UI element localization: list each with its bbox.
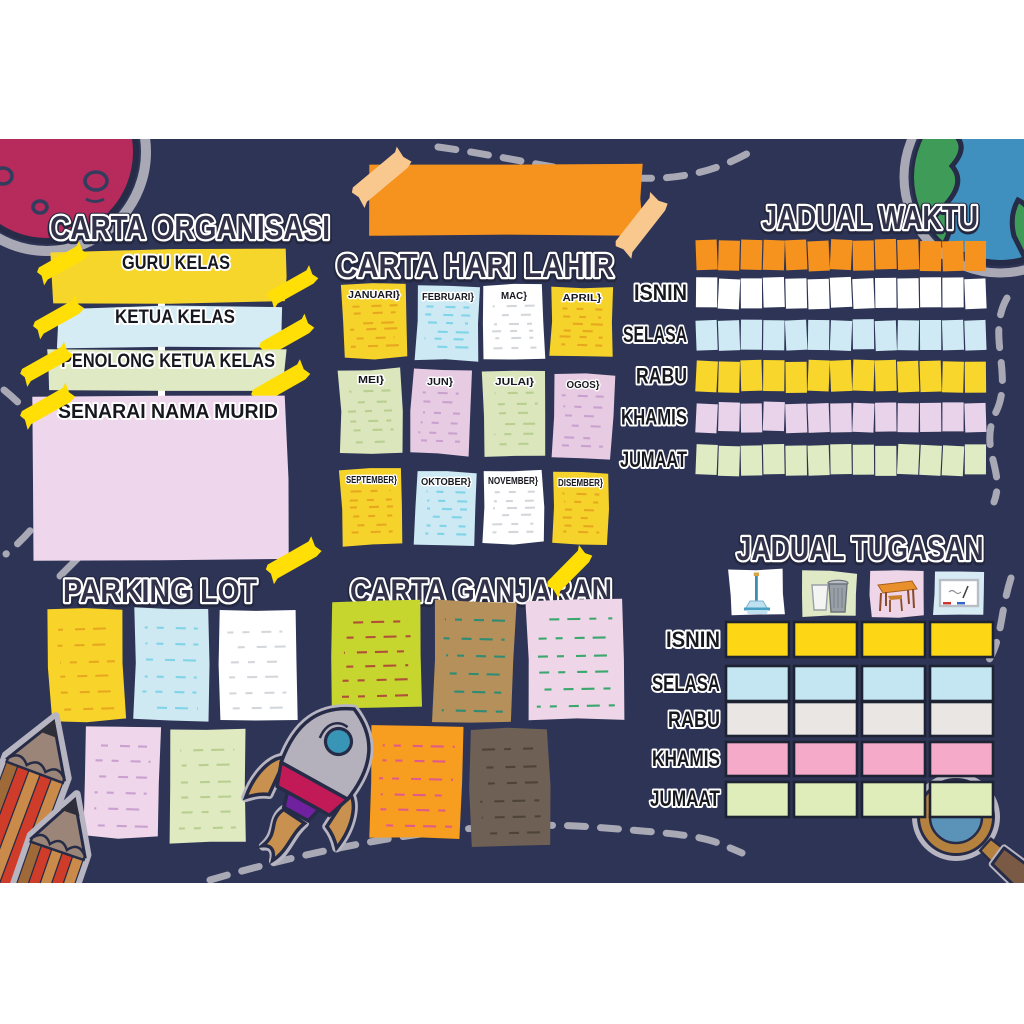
svg-text:KHAMIS: KHAMIS <box>652 746 720 771</box>
svg-text:RABU: RABU <box>668 707 720 732</box>
svg-text:MAC}: MAC} <box>501 291 527 302</box>
svg-text:JUMAAT: JUMAAT <box>650 786 720 811</box>
svg-text:FEBRUARI}: FEBRUARI} <box>422 292 474 303</box>
svg-text:JULAI}: JULAI} <box>495 377 534 388</box>
svg-text:DISEMBER}: DISEMBER} <box>558 478 603 489</box>
svg-text:APRIL}: APRIL} <box>563 293 602 304</box>
svg-text:JADUAL TUGASAN: JADUAL TUGASAN <box>737 530 984 567</box>
svg-text:RABU: RABU <box>636 364 687 389</box>
svg-text:ISNIN: ISNIN <box>634 280 687 305</box>
svg-text:NOVEMBER}: NOVEMBER} <box>488 476 538 487</box>
svg-text:OKTOBER}: OKTOBER} <box>421 477 471 488</box>
svg-text:SEPTEMBER}: SEPTEMBER} <box>346 475 397 486</box>
svg-text:CARTA HARI LAHIR: CARTA HARI LAHIR <box>336 247 614 284</box>
svg-text:JADUAL WAKTU: JADUAL WAKTU <box>762 199 978 236</box>
svg-text:PENOLONG KETUA KELAS: PENOLONG KETUA KELAS <box>61 351 275 372</box>
svg-text:SELASA: SELASA <box>652 671 720 696</box>
svg-text:CARTA ORGANISASI: CARTA ORGANISASI <box>50 209 330 246</box>
svg-text:JUN}: JUN} <box>427 377 453 388</box>
svg-text:PARKING LOT: PARKING LOT <box>63 573 257 609</box>
svg-text:JANUARI}: JANUARI} <box>348 290 400 301</box>
svg-text:KHAMIS: KHAMIS <box>621 405 687 430</box>
svg-text:KETUA KELAS: KETUA KELAS <box>115 307 235 328</box>
svg-text:SENARAI NAMA MURID: SENARAI NAMA MURID <box>58 401 278 423</box>
svg-text:MEI}: MEI} <box>358 375 384 386</box>
svg-text:OGOS}: OGOS} <box>567 380 600 391</box>
svg-text:GURU KELAS: GURU KELAS <box>122 253 230 274</box>
svg-text:JUMAAT: JUMAAT <box>620 447 687 472</box>
svg-text:SELASA: SELASA <box>623 322 687 347</box>
svg-text:ISNIN: ISNIN <box>666 627 720 652</box>
